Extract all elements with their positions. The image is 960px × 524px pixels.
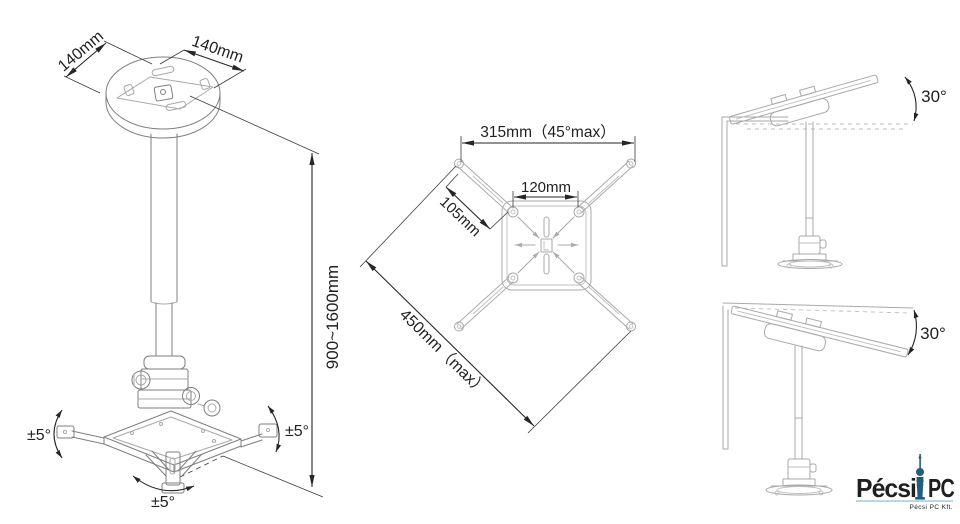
logo-text-pc: PC bbox=[928, 473, 955, 503]
logo-divider bbox=[856, 501, 953, 502]
angle-annotation-down: 30° bbox=[908, 310, 946, 355]
dim-label-120mm: 120mm bbox=[521, 179, 571, 196]
knob-right-lower bbox=[198, 400, 220, 416]
diagram-canvas: 140mm 140mm 900~1600mm ±5° ±5° ± bbox=[0, 0, 960, 524]
swivel-label-bottom: ±5° bbox=[151, 494, 175, 511]
tilted-arm-drawing bbox=[727, 69, 882, 138]
dim-label-140mm-left: 140mm bbox=[55, 28, 107, 75]
swivel-annotation-bottom: ±5° bbox=[133, 476, 194, 511]
extension-pole-drawing bbox=[151, 134, 177, 356]
tilt-up-view: 30° bbox=[722, 69, 947, 269]
dim-label-315mm: 315mm（45°max） bbox=[480, 124, 615, 141]
pole-and-base-drawing-2 bbox=[766, 346, 832, 495]
adjustment-head-drawing bbox=[132, 356, 220, 416]
logo-company-name: Pécsi PC Kft. bbox=[910, 504, 954, 511]
tilt-label-left: ±5° bbox=[27, 427, 51, 444]
angle-annotation-up: 30° bbox=[905, 77, 947, 121]
pole-and-base-drawing bbox=[778, 122, 842, 269]
spec-sheet: 140mm 140mm 900~1600mm ±5° ±5° ± bbox=[0, 0, 960, 524]
dimension-450mm: 450mm（max） bbox=[360, 166, 631, 433]
tv-tower-icon bbox=[915, 454, 925, 500]
wall-ceiling-drawing bbox=[722, 117, 913, 266]
front-view: 140mm 140mm 900~1600mm ±5° ±5° ± bbox=[27, 28, 342, 511]
center-plate-drawing bbox=[502, 201, 591, 290]
tilt-annotation-right: ±5° bbox=[268, 406, 309, 452]
mounting-plate-drawing bbox=[57, 411, 277, 493]
dimension-105mm: 105mm bbox=[436, 174, 508, 240]
top-view: 315mm（45°max） 120mm 105mm 450mm（max） bbox=[360, 124, 636, 433]
tilt-down-view: 30° bbox=[723, 300, 946, 495]
dim-label-450mm: 450mm（max） bbox=[396, 306, 491, 400]
brand-logo: Pécsi PC Pécsi PC Kft. bbox=[856, 454, 955, 511]
ceiling-plate-drawing bbox=[106, 57, 220, 138]
dimension-120mm: 120mm bbox=[513, 179, 578, 207]
dimension-315mm: 315mm（45°max） bbox=[461, 124, 635, 162]
angle-label-up: 30° bbox=[921, 87, 947, 106]
dim-label-height: 900~1600mm bbox=[323, 265, 342, 369]
wall-ceiling-drawing-2 bbox=[723, 303, 913, 449]
logo-text-pecsi: Pécsi bbox=[856, 473, 916, 503]
angle-label-down: 30° bbox=[920, 324, 946, 343]
tilt-label-right: ±5° bbox=[285, 423, 309, 440]
